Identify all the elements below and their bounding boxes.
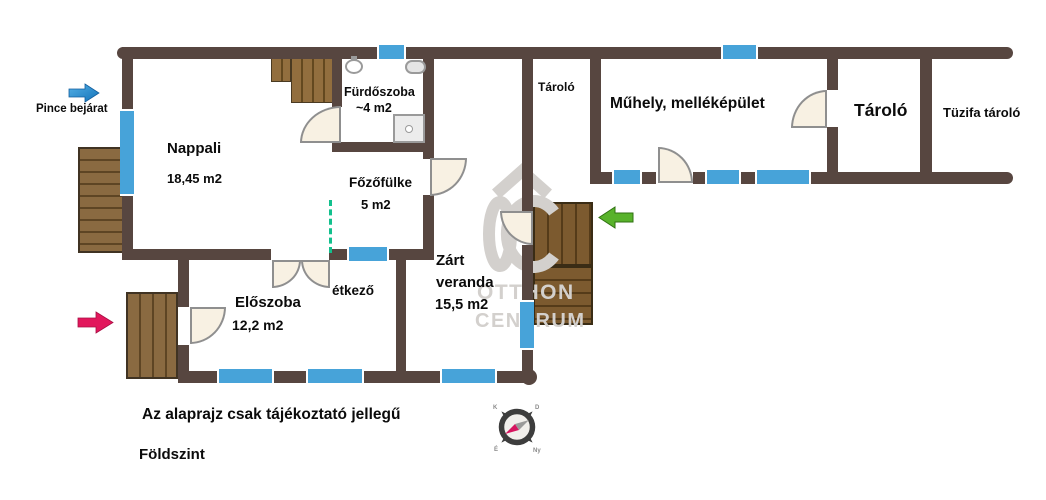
- wall-muhely-right-lower: [827, 127, 838, 173]
- room-label-furdoszoba: Fürdőszoba: [344, 85, 415, 99]
- room-area-furdoszoba: ~4 m2: [356, 101, 392, 115]
- compass-south-label: D: [535, 405, 540, 411]
- room-label-muhely: Műhely, melléképület: [610, 95, 765, 113]
- interior-stairs-step: [271, 58, 291, 82]
- cellar-entrance-arrow-icon: [69, 84, 99, 102]
- wall-corridor-right: [590, 47, 601, 174]
- room-label-tarolo-kis: Tároló: [538, 80, 575, 94]
- wall-tarolo-right: [920, 59, 932, 173]
- window-veranda-right: [520, 300, 534, 350]
- window-eloszoba-1: [217, 369, 274, 383]
- sink-tap-icon: [351, 56, 357, 60]
- door-muhely-entry: [658, 147, 693, 183]
- veranda-entrance-arrow-icon: [599, 207, 633, 228]
- main-entrance-arrow-icon: [78, 312, 113, 333]
- wall-muhely-right-upper: [827, 59, 838, 90]
- room-label-tuzifa: Tüzifa tároló: [943, 105, 1020, 120]
- window-muhely-bottom-2: [705, 170, 741, 184]
- cellar-door-window: [120, 109, 134, 196]
- room-label-veranda-1: Zárt: [436, 252, 464, 269]
- window-eloszoba-2: [306, 369, 364, 383]
- wall-outbuilding-bottom-right: [693, 172, 1013, 184]
- sink-icon: [345, 59, 363, 74]
- room-area-eloszoba: 12,2 m2: [232, 317, 283, 333]
- pince-bejarat-label: Pince bejárat: [36, 103, 108, 115]
- door-bathroom: [300, 106, 341, 143]
- wall-bathroom-left: [332, 59, 342, 107]
- window-veranda-bottom: [440, 369, 497, 383]
- door-kitchen-veranda: [430, 158, 467, 196]
- entry-deck: [126, 292, 178, 379]
- compass-north-label: É: [494, 445, 498, 453]
- compass-east-label: K: [493, 405, 498, 411]
- window-muhely-bottom-3: [755, 170, 811, 184]
- cellar-stairs: [78, 147, 125, 253]
- shower-drain-icon: [405, 125, 413, 133]
- open-boundary-kitchen: [329, 200, 332, 253]
- window-muhely-bottom-1: [612, 170, 642, 184]
- wall-kitchen-right-lower: [423, 195, 434, 260]
- window-muhely-top: [721, 45, 758, 59]
- room-area-fozofulke: 5 m2: [361, 197, 391, 212]
- double-door-left-leaf: [272, 260, 301, 288]
- wall-left-upper: [122, 47, 133, 109]
- room-area-veranda: 15,5 m2: [435, 297, 488, 313]
- room-label-nappali: Nappali: [167, 140, 221, 157]
- wall-veranda-right-upper: [522, 47, 533, 211]
- wall-etkezo-veranda: [396, 259, 406, 379]
- wall-top: [117, 47, 1013, 59]
- floor-label: Földszint: [139, 446, 205, 463]
- wall-eloszoba-left-upper: [178, 259, 189, 307]
- room-label-eloszoba: Előszoba: [235, 294, 301, 311]
- disclaimer-text: Az alaprajz csak tájékoztató jellegű: [142, 406, 400, 424]
- room-label-etkezo: étkező: [332, 283, 374, 298]
- compass-icon: É K D Ny: [491, 401, 544, 454]
- window-bathroom-top: [377, 45, 406, 59]
- window-nappali-etkezo: [347, 247, 389, 261]
- wall-veranda-right-mid: [522, 245, 533, 302]
- room-label-tarolo-nagy: Tároló: [854, 100, 907, 121]
- double-door-right-leaf: [301, 260, 330, 288]
- room-label-fozofulke: Főzőfülke: [349, 175, 412, 190]
- floor-plan: OTTHON CENTRUM Nappali 18,: [0, 0, 1046, 500]
- wall-nappali-bottom-left: [122, 249, 271, 260]
- interior-stairs: [291, 58, 334, 103]
- door-eloszoba-entry: [190, 307, 226, 344]
- door-muhely-tarolo: [791, 90, 827, 128]
- wall-bathroom-bottom: [332, 142, 429, 152]
- toilet-icon: [405, 60, 426, 74]
- room-area-nappali: 18,45 m2: [167, 171, 222, 186]
- room-label-veranda-2: veranda: [436, 274, 494, 291]
- compass-west-label: Ny: [533, 448, 541, 454]
